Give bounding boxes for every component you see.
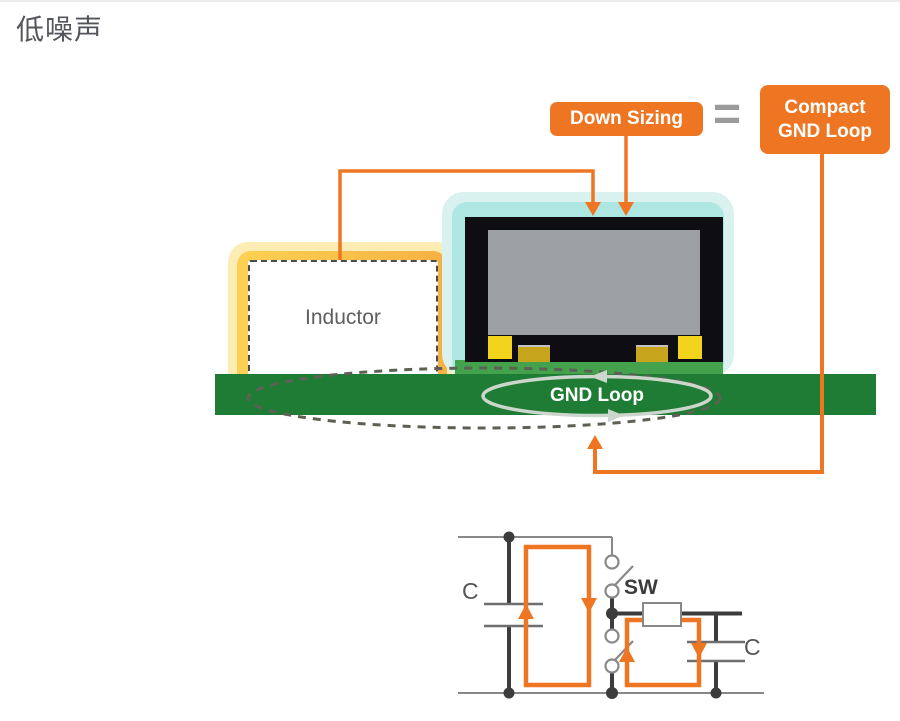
junction-dot bbox=[606, 608, 618, 620]
compact-gnd-loop-badge: Compact GND Loop bbox=[760, 85, 890, 154]
current-loop-right bbox=[627, 620, 699, 685]
junction-dot bbox=[504, 532, 515, 543]
loop-right-down-arrow-icon bbox=[691, 643, 707, 658]
junction-dot bbox=[606, 687, 618, 699]
compact-connector-line bbox=[595, 154, 822, 472]
down-sizing-connector-arrow-icon bbox=[618, 202, 634, 216]
current-loop-left bbox=[526, 547, 589, 685]
junction-dot bbox=[504, 688, 515, 699]
down-sizing-label: Down Sizing bbox=[570, 108, 683, 130]
equals-sign: = bbox=[704, 86, 750, 142]
junction-dot bbox=[711, 688, 722, 699]
switch-terminal-1 bbox=[606, 556, 619, 569]
loop-left-up-arrow-icon bbox=[518, 604, 534, 619]
switch-label: SW bbox=[624, 576, 658, 600]
gnd-loop-arrow-right-icon bbox=[608, 409, 624, 422]
circuit-schematic bbox=[458, 532, 764, 700]
inductor-connector-line bbox=[340, 171, 593, 260]
switch-terminal-3 bbox=[606, 630, 619, 643]
compact-connector-arrow-icon bbox=[587, 435, 603, 449]
inductor-connector-arrow-icon bbox=[585, 202, 601, 216]
switch-terminal-4 bbox=[606, 660, 619, 673]
series-component-box bbox=[643, 603, 681, 626]
down-sizing-badge: Down Sizing bbox=[550, 102, 703, 136]
loop-left-down-arrow-icon bbox=[581, 598, 597, 613]
compact-label-line2: GND Loop bbox=[778, 120, 872, 144]
gnd-loop-label: GND Loop bbox=[537, 385, 657, 407]
capacitor-left-label: C bbox=[462, 578, 479, 605]
compact-label-line1: Compact bbox=[784, 96, 865, 120]
capacitor-right-label: C bbox=[744, 634, 761, 661]
switch-terminal-2 bbox=[606, 585, 619, 598]
diagram-canvas: 低噪声 Inductor bbox=[0, 0, 900, 721]
